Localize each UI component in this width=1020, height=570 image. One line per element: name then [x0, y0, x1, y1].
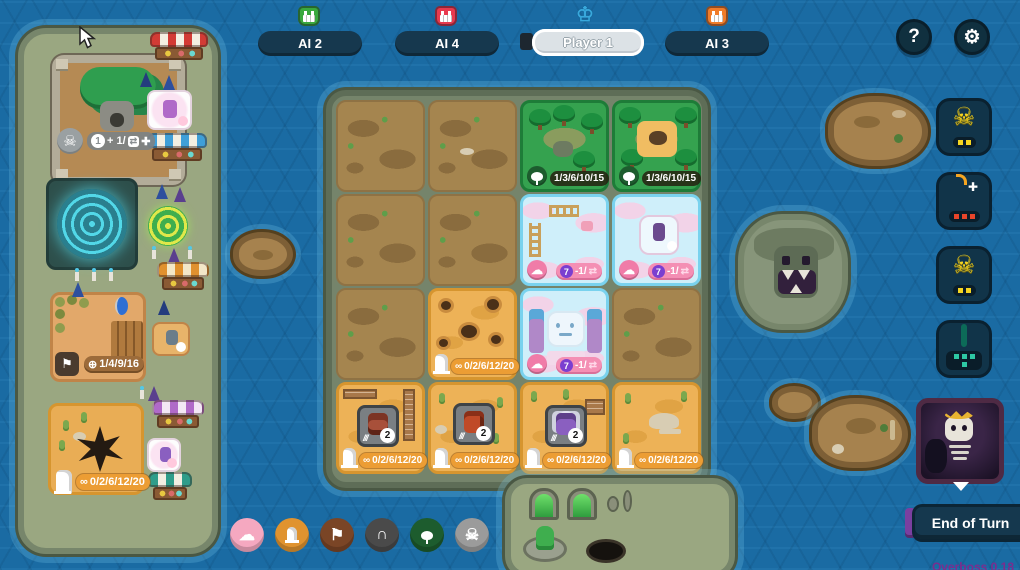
candle — [75, 272, 79, 281]
cactus-decor — [81, 412, 87, 423]
monster-power-badge: 2 — [380, 428, 395, 443]
board-tile-r4c3-desert[interactable]: /// 2 ∞0/2/6/12/20 — [520, 382, 609, 474]
gear-icon: ⚙ — [963, 26, 980, 49]
swap-icon: ⇄ — [589, 266, 597, 277]
board-tile-r2c2-dirt[interactable] — [428, 194, 517, 286]
shop-stall-orange[interactable] — [157, 262, 209, 290]
link-icon: ∞ — [455, 455, 462, 466]
stall-awning — [147, 133, 207, 148]
board-tile-r4c2-desert[interactable]: /// 2 ∞0/2/6/12/20 — [428, 382, 517, 474]
cost-dots — [946, 351, 982, 370]
claw-icon: /// — [459, 431, 464, 441]
player-pill-player1: Player 1 — [532, 29, 644, 56]
island-dirt-patch — [854, 116, 880, 128]
board-tile-r3c4-dirt[interactable] — [612, 288, 701, 380]
skeleton-skull-face — [945, 417, 973, 441]
board-tile-r1c4-forest[interactable]: 1/3/6/10/15 — [612, 100, 701, 192]
stall-counter — [157, 415, 199, 428]
settings-button[interactable]: ⚙ — [954, 19, 990, 55]
portal-tile[interactable] — [46, 178, 138, 270]
monster-card-golem[interactable]: /// 2 — [453, 403, 495, 445]
skeleton-rib — [953, 457, 967, 460]
skull-icon: ☠ — [465, 525, 479, 545]
score-modifier: -1/ — [575, 360, 587, 371]
candle — [152, 250, 156, 259]
fort-tree — [79, 298, 89, 308]
stall-counter — [153, 487, 187, 500]
island-bone — [890, 420, 895, 440]
tree-decor — [553, 105, 575, 122]
board-tile-r1c1-dirt[interactable] — [336, 100, 425, 192]
swap-icon: ⇄ — [589, 360, 597, 371]
game-screen: 1/3/6/10/15 1/3/6/10/15 ☁ 7-1/⇄ ☁ — [0, 0, 1020, 570]
link-icon: ∞ — [80, 476, 88, 488]
monster-power-badge: 2 — [568, 428, 583, 443]
player-name: Player 1 — [563, 35, 613, 50]
stall-awning — [148, 472, 192, 487]
portal-arch — [567, 488, 597, 520]
candle — [188, 250, 192, 259]
island-rock — [892, 110, 906, 118]
tree-decor — [619, 107, 641, 124]
cost-dots — [953, 285, 976, 296]
fort-score-badge: ⊕1/4/9/16 — [84, 356, 144, 373]
mini-creature — [166, 330, 178, 345]
burrow-hole — [439, 339, 448, 347]
skeleton-skull — [649, 413, 679, 429]
swap-icon: ⇄ — [128, 136, 140, 147]
board-tile-r2c1-dirt[interactable] — [336, 194, 425, 286]
fort-tree — [55, 297, 65, 307]
cloud-icon: ☁ — [239, 525, 255, 545]
board-tile-r2c3-cloud[interactable]: ☁ 7-1/⇄ — [520, 194, 609, 286]
tree-decor — [675, 149, 697, 166]
terrain-button-skull[interactable]: ☠ — [455, 518, 489, 552]
tree-decor — [581, 113, 603, 130]
tree-icon — [421, 531, 433, 540]
horned-skull-icon: ☠ — [939, 253, 989, 278]
dark-shoulder — [925, 439, 947, 473]
cost-dots — [949, 211, 980, 222]
gold-crown — [945, 411, 973, 419]
player-pill-ai2: AI 2 — [258, 31, 362, 56]
portal-arch — [529, 488, 559, 520]
cloud-face-mouth — [559, 333, 572, 336]
flag-icon: ⚑ — [55, 352, 79, 376]
board-tile-r4c1-desert-ruins[interactable]: /// 2 ∞0/2/6/12/20 — [336, 382, 425, 474]
stone-face-fang — [782, 270, 794, 280]
monster-card-bug[interactable]: /// 2 — [357, 405, 399, 447]
player-name: AI 2 — [298, 36, 322, 51]
small-island-south-2 — [812, 398, 908, 468]
shop-stall-red[interactable] — [150, 32, 208, 60]
dark-pit — [589, 542, 623, 560]
tree-icon — [619, 166, 639, 186]
cloud-face-eye — [556, 323, 560, 328]
cactus-decor — [439, 393, 445, 404]
orange-monster-icon — [706, 6, 728, 26]
green-portal-swirl — [148, 206, 188, 246]
ruin-wall — [585, 399, 605, 415]
terrain-button-forest[interactable] — [410, 518, 444, 552]
burrow-hole — [487, 299, 499, 310]
ruin-wall — [403, 389, 415, 441]
broken-arch — [623, 490, 632, 512]
stone-face-eye — [802, 256, 810, 265]
cactus-decor — [497, 397, 503, 408]
tile-score-badge: ∞0/2/6/12/20 — [451, 359, 519, 374]
tile-score-badge: 7-1/⇄ — [556, 263, 602, 280]
card-token — [167, 458, 177, 468]
tree-decor — [675, 107, 697, 124]
candle — [109, 272, 113, 281]
statue-icon — [343, 448, 356, 468]
stall-awning — [150, 32, 208, 47]
statue-icon — [435, 448, 448, 468]
arch-icon: ∩ — [376, 526, 388, 544]
cactus-decor — [681, 391, 687, 402]
end-turn-label: End of Turn — [932, 515, 1010, 531]
mouse-cursor — [78, 26, 96, 50]
score-modifier: -1/ — [575, 266, 587, 277]
tree-decor — [529, 109, 551, 126]
board-tile-r3c2-desert[interactable]: ∞0/2/6/12/20 — [428, 288, 517, 380]
island-dirt-patch — [253, 250, 273, 260]
cactus-decor — [63, 420, 69, 431]
speech-bubble — [667, 241, 677, 251]
bone-decor — [460, 148, 474, 155]
stone-face-fang — [798, 270, 810, 280]
score-circle: 7 — [560, 265, 573, 278]
mini-token — [176, 342, 186, 352]
ability-button-jaw[interactable] — [936, 320, 992, 378]
rock-decor — [435, 425, 447, 434]
player-pill-ai3: AI 3 — [665, 31, 769, 56]
horned-skull-icon: ☠ — [939, 105, 989, 130]
small-island-northeast — [828, 96, 928, 166]
lair-badge-row: ☠ 1 + 1/ ⇄ ✚ — [57, 128, 155, 154]
stone-face-eye — [782, 256, 790, 265]
card-token — [178, 116, 188, 126]
statue-icon — [287, 527, 297, 543]
cave-hole — [649, 131, 667, 145]
link-icon: ∞ — [639, 455, 646, 466]
score-circle: 7 — [652, 265, 665, 278]
creature-card-pink[interactable] — [147, 90, 192, 130]
fort-badge-row: ⚑ ⊕1/4/9/16 — [55, 352, 144, 376]
candle — [92, 272, 96, 281]
player-name: AI 4 — [435, 36, 459, 51]
lair-cave-entrance — [110, 113, 124, 127]
board-tile-r1c2-dirt[interactable] — [428, 100, 517, 192]
tile-score-badge: ∞0/2/6/12/20 — [359, 453, 427, 468]
tile-score-badge: 7-1/⇄ — [648, 263, 694, 280]
skeleton-rib — [951, 451, 969, 454]
broken-arch — [607, 496, 619, 512]
skeleton-eye — [951, 425, 956, 431]
ability-button-skull-2[interactable]: ☠ — [936, 246, 992, 304]
shop-stall-purple[interactable] — [152, 400, 204, 428]
small-island-west — [233, 232, 293, 276]
chevron-down-icon — [953, 482, 969, 491]
creature-sprite — [163, 100, 177, 118]
vortex-badge-row: ∞0/2/6/12/20 — [56, 470, 150, 494]
creature-card-fairy[interactable] — [147, 438, 181, 472]
stall-counter — [155, 47, 203, 60]
ability-button-bomb[interactable] — [936, 172, 992, 230]
cactus-decor — [531, 391, 537, 402]
board-tile-r1c3-forest[interactable]: 1/3/6/10/15 — [520, 100, 609, 192]
cloud-critter — [581, 221, 593, 231]
horned-skull-icon: ☠ — [57, 128, 83, 154]
skeleton-eye — [962, 425, 967, 431]
island-bush — [894, 134, 903, 143]
lair-income-badge: 1 + 1/ ⇄ ✚ — [87, 132, 155, 150]
lair-corner-block — [169, 169, 181, 181]
board-tile-r3c3-cloud-castle[interactable]: ☁ 7-1/⇄ — [520, 288, 609, 380]
terrain-button-cave[interactable]: ∩ — [365, 518, 399, 552]
link-icon: ∞ — [455, 361, 462, 372]
portal-glow — [573, 494, 591, 517]
board-tile-r3c1-dirt[interactable] — [336, 288, 425, 380]
portal-glow — [535, 494, 553, 517]
tile-score-badge: 7-1/⇄ — [556, 357, 602, 374]
stone-face-island — [738, 214, 848, 330]
ruin-wall — [343, 389, 377, 399]
small-island-south-1 — [772, 386, 818, 419]
tile-score-badge: 1/3/6/10/15 — [550, 171, 609, 186]
plus-icon: ✚ — [141, 135, 150, 148]
board-tile-r2c4-cloud[interactable]: ☁ 7-1/⇄ — [612, 194, 701, 286]
claw-icon: /// — [363, 433, 368, 443]
island-bush — [880, 424, 888, 432]
crown-icon: ♔ — [576, 2, 594, 27]
link-icon: ∞ — [363, 455, 370, 466]
imp-creature — [653, 223, 665, 241]
tile-score-badge: ∞0/2/6/12/20 — [451, 453, 519, 468]
cave-rock — [553, 141, 573, 157]
terrain-button-banner[interactable]: ⚑ — [320, 518, 354, 552]
stall-awning — [157, 262, 209, 277]
cloud-bridge — [549, 205, 579, 217]
claw-icon: /// — [551, 433, 556, 443]
portal-swirl — [57, 189, 127, 259]
cloud-face-block — [549, 313, 583, 345]
board-tile-r4c4-desert-bones[interactable]: ∞0/2/6/12/20 — [612, 382, 701, 474]
version-label: Overboss 0.18 — [932, 560, 1014, 570]
swap-icon: ⇄ — [681, 266, 689, 277]
help-label: ? — [908, 26, 920, 48]
green-creature[interactable] — [536, 526, 554, 550]
candle — [140, 390, 144, 399]
cactus-decor — [625, 393, 631, 404]
end-turn-button[interactable]: End of Turn — [912, 504, 1020, 542]
castle-tower — [587, 309, 602, 353]
stall-counter — [162, 277, 204, 290]
lair-corner-block — [169, 59, 181, 71]
stall-awning — [152, 400, 204, 415]
skeleton-rib — [949, 445, 971, 448]
statue-icon — [435, 354, 448, 374]
island-dirt-patch — [846, 418, 876, 434]
boss-portrait-card[interactable] — [916, 398, 1004, 484]
statue-icon — [527, 448, 540, 468]
burrow-hole — [441, 301, 451, 310]
coin-circle: 1 — [91, 134, 105, 148]
cloud-icon: ☁ — [619, 260, 639, 280]
jaw-icon — [939, 327, 989, 345]
link-icon: ∞ — [547, 455, 554, 466]
cactus-decor — [59, 440, 65, 451]
fort-tree — [55, 309, 65, 319]
shop-stall-blue[interactable] — [147, 133, 207, 161]
cost-dots — [953, 137, 976, 148]
help-button[interactable]: ? — [896, 19, 932, 55]
vortex-score-badge: ∞0/2/6/12/20 — [76, 474, 150, 490]
monster-power-badge: 2 — [476, 426, 491, 441]
red-monster-icon — [435, 6, 457, 26]
burrow-hole — [491, 335, 501, 344]
stone-face-fang — [790, 284, 802, 293]
terrain-button-cloud[interactable]: ☁ — [230, 518, 264, 552]
castle-tower — [529, 309, 544, 353]
flag-icon: ⚑ — [330, 525, 344, 545]
tree-icon — [527, 166, 547, 186]
monster-card-fairy[interactable]: /// 2 — [545, 405, 587, 447]
cactus-decor — [623, 433, 629, 444]
player-name: AI 3 — [705, 36, 729, 51]
cloud-ladder — [529, 223, 541, 257]
island-skull-rock — [832, 444, 844, 454]
tile-score-badge: ∞0/2/6/12/20 — [635, 453, 703, 468]
score-modifier: -1/ — [667, 266, 679, 277]
tile-score-badge: 1/3/6/10/15 — [642, 171, 701, 186]
shop-stall-teal[interactable] — [148, 472, 192, 500]
player-pill-ai4: AI 4 — [395, 31, 499, 56]
cactus-decor — [563, 389, 569, 400]
stall-counter — [152, 148, 202, 161]
lair-corner-block — [56, 59, 68, 71]
statue-icon — [56, 470, 72, 494]
green-monster-icon — [298, 6, 320, 26]
cloud-icon: ☁ — [527, 260, 547, 280]
token-icon: ⊕ — [88, 358, 97, 371]
tile-score-badge: ∞0/2/6/12/20 — [543, 453, 611, 468]
mini-desert-tile[interactable] — [152, 322, 190, 356]
burrow-hole — [461, 325, 477, 338]
cloud-face-eye — [570, 323, 574, 328]
portal-island — [505, 478, 735, 570]
blue-banner — [115, 297, 128, 315]
terrain-button-desert[interactable] — [275, 518, 309, 552]
cloud-icon: ☁ — [527, 354, 547, 374]
score-circle: 7 — [560, 359, 573, 372]
ability-button-skull-1[interactable]: ☠ — [936, 98, 992, 156]
skeleton-bone — [659, 429, 681, 434]
statue-icon — [619, 448, 632, 468]
fort-tree — [55, 323, 65, 333]
